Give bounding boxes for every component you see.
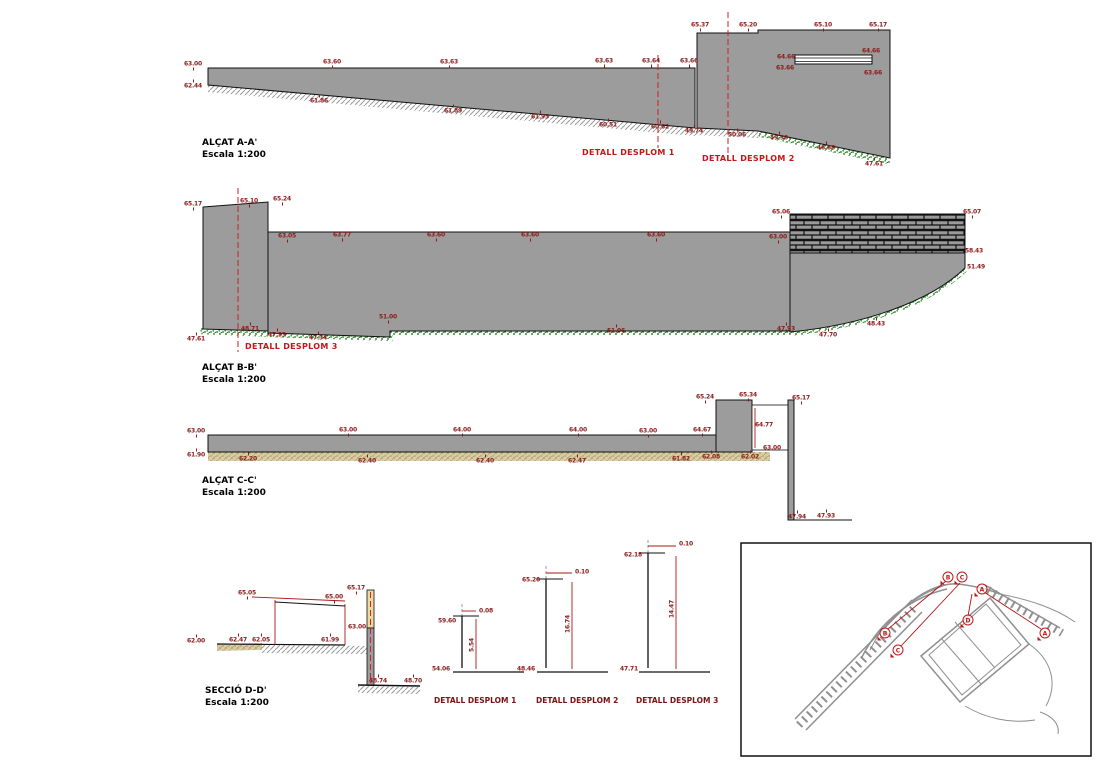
detail-2-label: DETALL DESPLOM 2 <box>536 696 618 705</box>
drawing-sheet: 63.0062.4463.6063.6363.6363.6463.6661.86… <box>0 0 1097 762</box>
elevation-b-title: ALÇAT B-B' <box>202 363 257 373</box>
cad-linework-canvas <box>0 0 1097 762</box>
elevation-b-linework <box>200 188 965 352</box>
detail-callout-3: DETALL DESPLOM 3 <box>245 342 338 351</box>
elevation-a-title: ALÇAT A-A' <box>202 138 257 148</box>
detail-desplom-linework <box>453 540 710 672</box>
detail-1-label: DETALL DESPLOM 1 <box>434 696 516 705</box>
section-d-title: SECCIÓ D-D' <box>205 686 267 696</box>
elevation-c-linework <box>208 400 852 520</box>
elevation-c-scale: Escala 1:200 <box>202 488 266 498</box>
elevation-a-scale: Escala 1:200 <box>202 150 266 160</box>
elevation-c-title: ALÇAT C-C' <box>202 476 257 486</box>
elevation-a-linework <box>208 12 890 161</box>
detail-callout-2: DETALL DESPLOM 2 <box>702 154 795 163</box>
elevation-b-scale: Escala 1:200 <box>202 375 266 385</box>
site-plan-linework <box>741 543 1091 756</box>
section-d-scale: Escala 1:200 <box>205 698 269 708</box>
section-d-linework <box>217 590 420 694</box>
detail-callout-1: DETALL DESPLOM 1 <box>582 148 675 157</box>
detail-3-label: DETALL DESPLOM 3 <box>636 696 718 705</box>
